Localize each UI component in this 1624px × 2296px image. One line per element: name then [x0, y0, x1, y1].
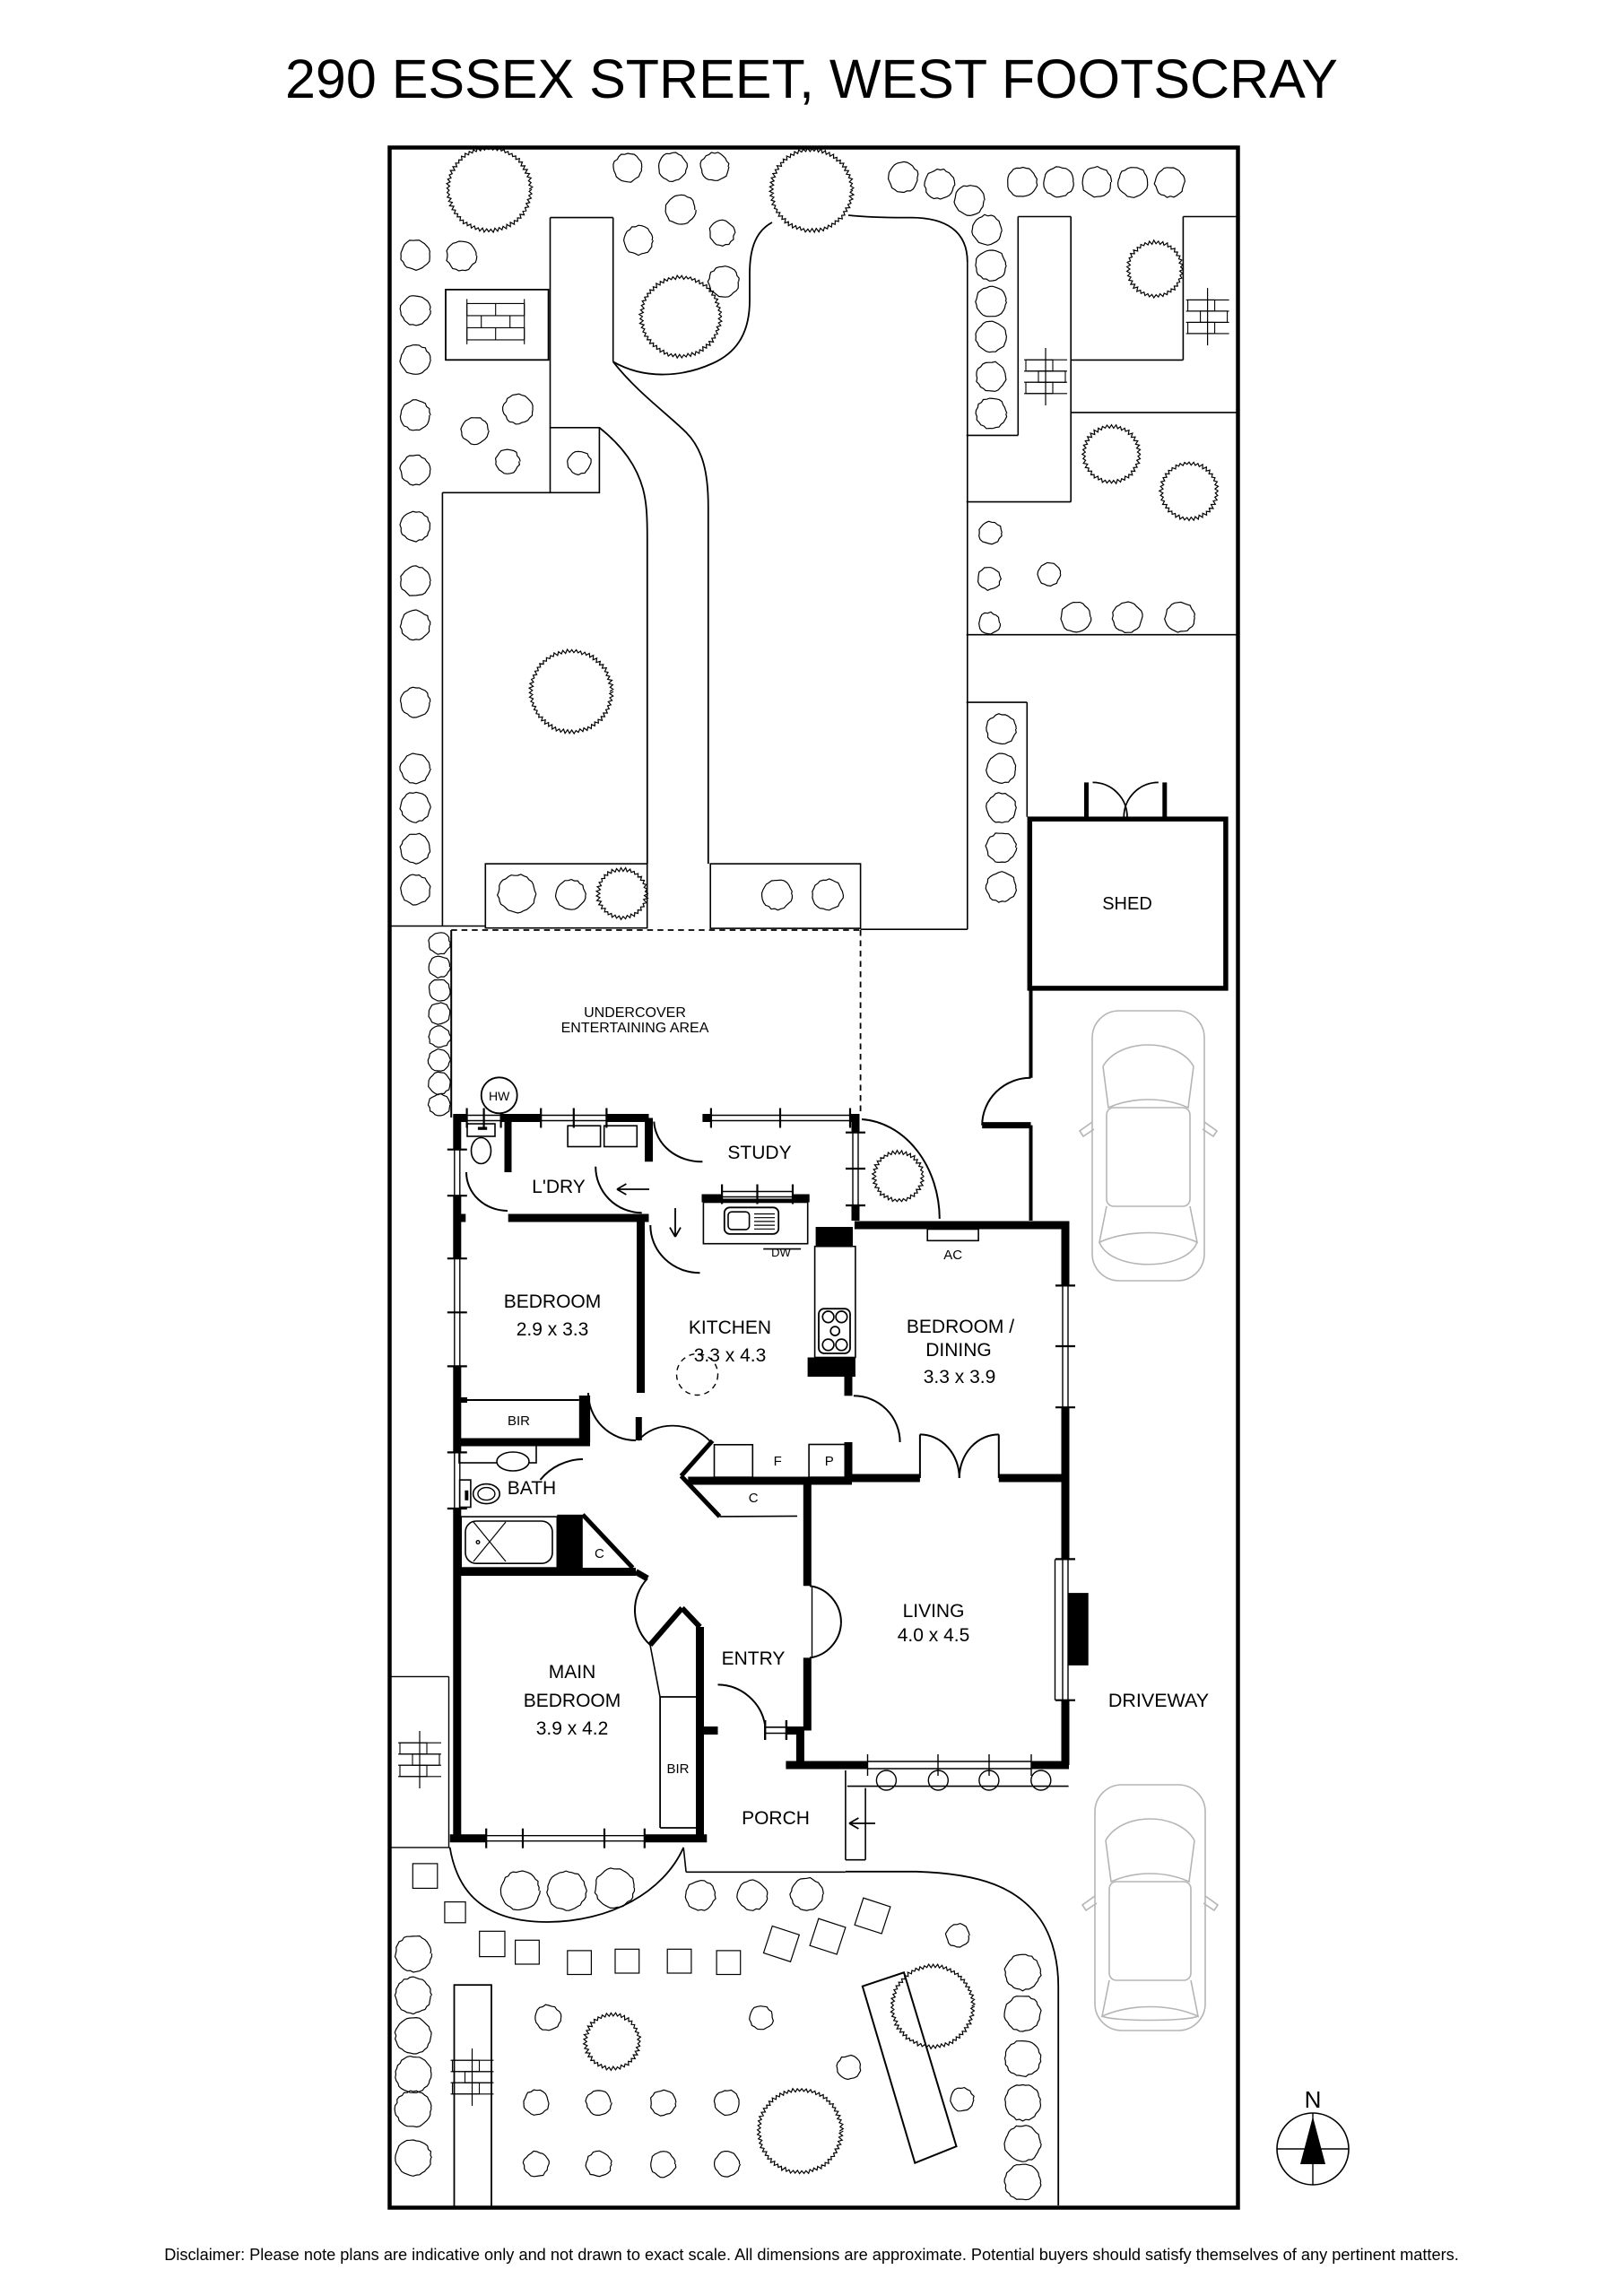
svg-text:N: N — [1305, 2086, 1322, 2113]
svg-text:SHED: SHED — [1102, 894, 1152, 914]
svg-text:LIVING: LIVING — [903, 1601, 965, 1622]
svg-text:DRIVEWAY: DRIVEWAY — [1108, 1690, 1209, 1711]
svg-text:AC: AC — [943, 1248, 962, 1263]
svg-text:BEDROOM: BEDROOM — [504, 1291, 602, 1312]
svg-text:ENTERTAINING AREA: ENTERTAINING AREA — [561, 1021, 709, 1036]
svg-text:3.9 x 4.2: 3.9 x 4.2 — [536, 1718, 609, 1739]
svg-text:BIR: BIR — [666, 1761, 689, 1777]
svg-text:F: F — [774, 1454, 782, 1469]
svg-text:BEDROOM /: BEDROOM / — [907, 1317, 1014, 1337]
svg-text:ENTRY: ENTRY — [722, 1648, 786, 1669]
svg-text:DINING: DINING — [925, 1340, 992, 1361]
svg-text:BIR: BIR — [508, 1413, 530, 1429]
svg-text:KITCHEN: KITCHEN — [689, 1318, 771, 1338]
svg-text:290 ESSEX STREET, WEST FOOTSCR: 290 ESSEX STREET, WEST FOOTSCRAY — [285, 48, 1338, 109]
svg-text:UNDERCOVER: UNDERCOVER — [584, 1005, 686, 1021]
svg-text:MAIN: MAIN — [549, 1662, 596, 1683]
svg-text:Disclaimer: Please note plans: Disclaimer: Please note plans are indica… — [164, 2246, 1459, 2264]
svg-text:HW: HW — [489, 1089, 510, 1103]
svg-text:3.3 x 3.9: 3.3 x 3.9 — [924, 1367, 996, 1387]
svg-text:C: C — [749, 1491, 759, 1506]
svg-text:C: C — [595, 1546, 604, 1561]
svg-text:PORCH: PORCH — [742, 1808, 810, 1829]
svg-text:3.3 x 4.3: 3.3 x 4.3 — [694, 1345, 767, 1366]
svg-text:BATH: BATH — [508, 1478, 556, 1499]
svg-text:2.9 x 3.3: 2.9 x 3.3 — [517, 1319, 589, 1340]
svg-text:BEDROOM: BEDROOM — [524, 1691, 621, 1711]
svg-text:STUDY: STUDY — [727, 1143, 791, 1163]
svg-text:DW: DW — [771, 1246, 791, 1259]
svg-text:L'DRY: L'DRY — [532, 1177, 586, 1197]
svg-text:P: P — [825, 1454, 834, 1469]
svg-text:4.0 x 4.5: 4.0 x 4.5 — [898, 1625, 970, 1646]
